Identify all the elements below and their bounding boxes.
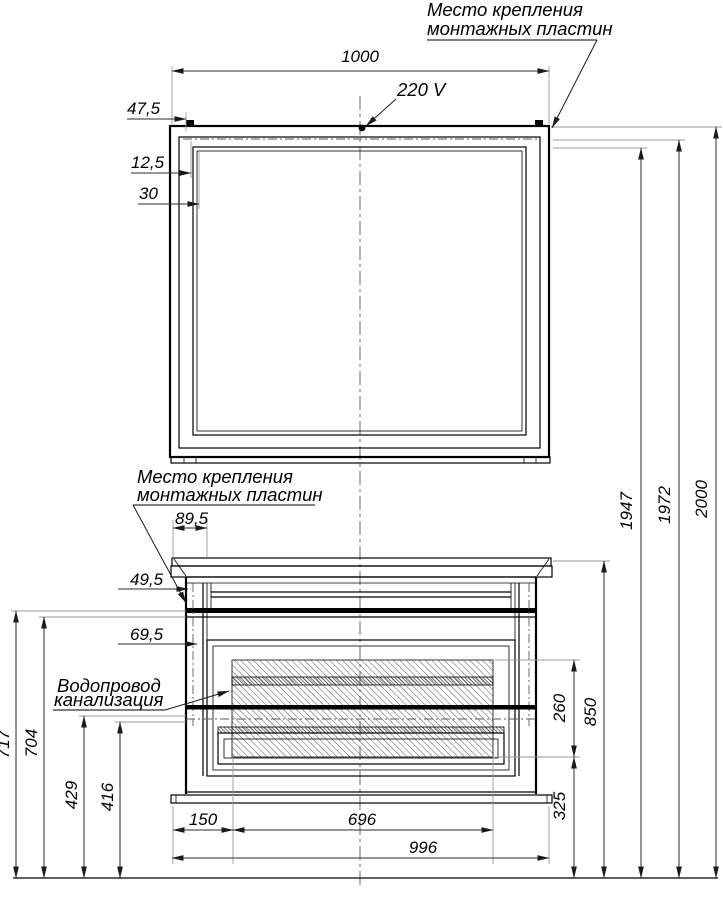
dim-right-260: 260 [550,693,569,723]
dim-right-325: 325 [550,791,569,820]
dim-bottom-696: 696 [348,810,377,829]
dim-right-850: 850 [581,697,600,726]
power-outlet-point [359,125,366,132]
power-label: 220 V [396,79,447,100]
vanity-mirror-dimension-drawing: Место крепления монтажных пластин 220 V … [0,0,723,900]
mounting-plates-label-top-line1: Место крепления [427,0,583,20]
dim-frame-inset-large: 30 [139,184,158,203]
technical-drawing-page: Место крепления монтажных пластин 220 V … [0,0,723,900]
dim-overall-1947: 1947 [617,492,636,530]
dim-mirror-width: 1000 [341,47,379,66]
dim-height-717: 717 [0,729,13,758]
dim-cabinet-plate-side: 49,5 [130,570,164,589]
cabinet-front-view [171,558,552,803]
dim-cabinet-niche-offset: 69,5 [130,625,164,644]
mounting-plate-right [535,120,543,126]
dim-plate-offset-top: 47,5 [127,99,161,118]
dim-bottom-996: 996 [409,838,438,857]
dim-height-429: 429 [62,780,81,809]
dim-frame-inset-small: 12,5 [131,153,165,172]
dim-overall-2000: 2000 [692,480,711,519]
dim-cabinet-plate-offset: 89,5 [175,509,209,528]
dim-height-416: 416 [98,782,117,811]
dim-overall-1972: 1972 [655,486,674,524]
dim-bottom-150: 150 [189,810,218,829]
plumbing-label-line2: канализация [54,689,164,710]
mounting-plates-label-top-line2: монтажных пластин [427,18,613,39]
dim-height-704: 704 [22,729,41,757]
mounting-plate-left [186,120,194,126]
mounting-plates-label-mid-line2: монтажных пластин [137,484,323,505]
